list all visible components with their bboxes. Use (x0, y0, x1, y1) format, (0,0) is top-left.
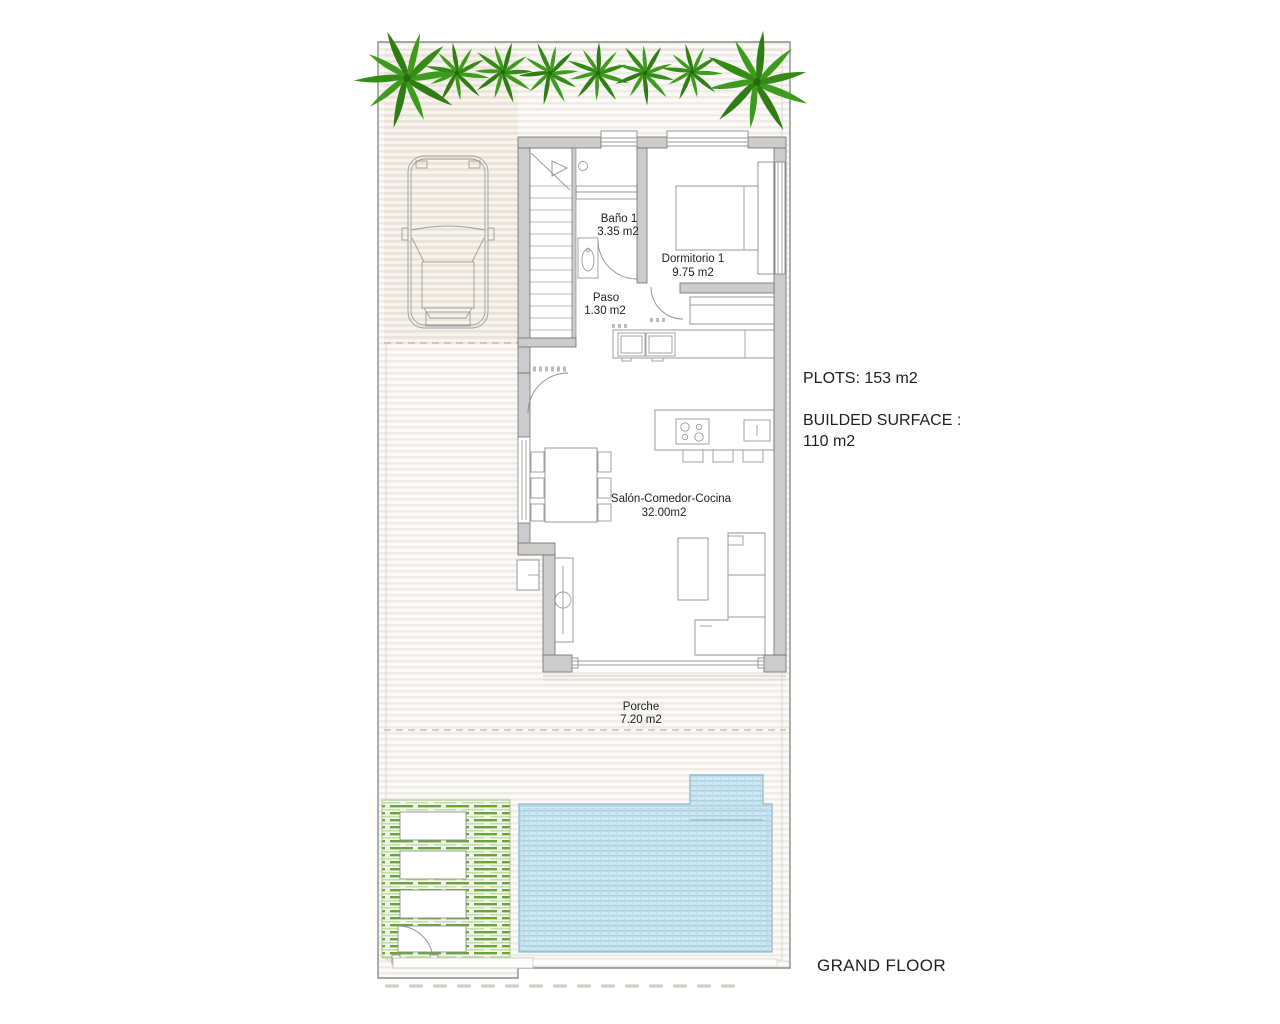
room-area-paso: 1.30 m2 (584, 305, 626, 317)
dining-table (545, 448, 597, 522)
window-bedroom-top (667, 131, 748, 146)
plots-annotation: PLOTS: 153 m2 (803, 370, 918, 387)
window-living-left (518, 437, 530, 523)
floor-title: GRAND FLOOR (817, 956, 946, 975)
window-bathroom (601, 131, 637, 146)
sideboard (690, 297, 776, 324)
garden-planter (400, 890, 466, 918)
gate-recess (398, 926, 466, 952)
room-area-dormitorio: 9.75 m2 (672, 267, 714, 279)
window-bedroom-right (775, 162, 785, 274)
walkway-strip (533, 959, 777, 966)
floor-plan-page: Baño 1 3.35 m2 Dormitorio 1 9.75 m2 Paso… (0, 0, 1280, 1024)
room-label-porche: Porche (623, 701, 659, 713)
room-label-paso: Paso (593, 292, 619, 304)
kitchen-counter (613, 330, 775, 358)
garden-planter (400, 812, 466, 840)
room-area-bano: 3.35 m2 (597, 226, 639, 238)
built-surface-annotation-line1: BUILDED SURFACE : (803, 412, 961, 429)
room-area-porche: 7.20 m2 (620, 714, 662, 726)
room-area-salon: 32.00m2 (642, 507, 687, 519)
walkway (393, 958, 533, 968)
garden-planter (400, 851, 466, 879)
staircase (528, 148, 572, 338)
built-surface-annotation-line2: 110 m2 (803, 433, 855, 450)
room-label-dormitorio: Dormitorio 1 (662, 253, 725, 265)
bed-headboard (758, 162, 774, 274)
coffee-table (678, 538, 708, 600)
room-label-bano: Baño 1 (601, 213, 637, 225)
room-label-salon: Salón-Comedor-Cocina (611, 493, 732, 505)
bed (676, 186, 758, 250)
floor-plan-drawing: Baño 1 3.35 m2 Dormitorio 1 9.75 m2 Paso… (0, 0, 1280, 1024)
kitchen-island (655, 410, 774, 450)
